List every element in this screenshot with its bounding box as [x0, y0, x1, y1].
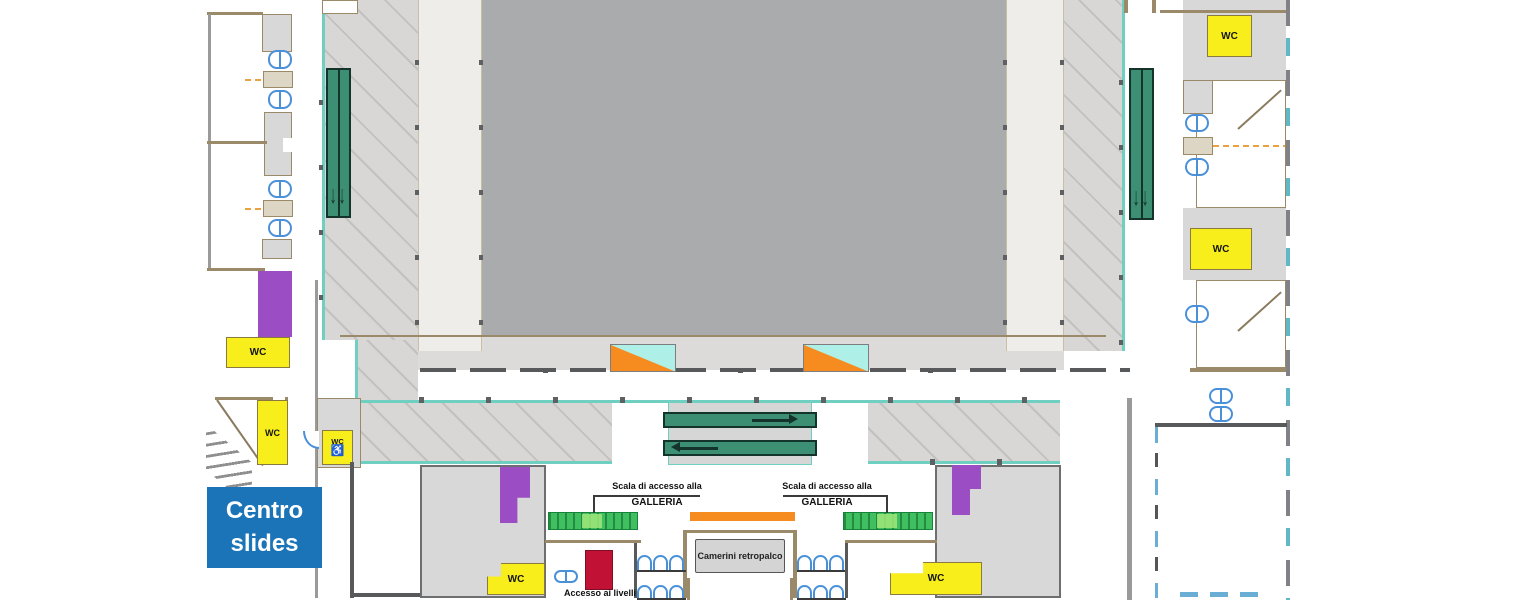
wheelchair-icon: ♿: [331, 446, 345, 457]
arrow-shaft: [680, 447, 718, 450]
wall: [1190, 368, 1288, 372]
badge-line1: Centro: [226, 495, 303, 527]
column-grid-dots: [1119, 20, 1123, 350]
escalator-left: ↓↓: [326, 68, 351, 218]
stage-area: [482, 0, 1006, 337]
wall-niche: [1183, 137, 1213, 155]
right-column-strip: [1006, 0, 1064, 351]
gallery-stairs-note-right: Scala di accesso alla: [747, 481, 907, 491]
wc-room: WC: [890, 562, 982, 595]
folding-door-row: [637, 555, 686, 572]
down-arrows-icon: ↓↓: [328, 180, 349, 209]
wall: [1160, 10, 1287, 13]
escalator-right: ↓↓: [1129, 68, 1154, 220]
dashed-wall: [1155, 427, 1158, 598]
column-grid-dots: [357, 397, 1060, 403]
wall: [1152, 0, 1156, 13]
wall: [207, 12, 263, 15]
wc-room: WC: [1190, 228, 1252, 270]
double-door-icon: [265, 50, 295, 69]
right-side-corridor: [1064, 0, 1125, 351]
wall-opening: [283, 138, 293, 152]
folding-door-row: [797, 555, 846, 572]
dashed-wall: [1180, 592, 1265, 597]
double-door-icon: [1209, 388, 1233, 404]
floor-plan: WC WC WC ♿ ↓↓ ↓↓ WC WC: [0, 0, 1520, 600]
wall: [1124, 0, 1128, 13]
wall: [1155, 423, 1287, 427]
right-arrow-icon: [789, 414, 798, 424]
stage-exit-ramp: [803, 344, 869, 372]
wall: [207, 141, 267, 144]
wall: [845, 543, 848, 598]
wall-block: [262, 239, 292, 259]
stair-block-red: [585, 550, 613, 590]
stage-edge-wall: [340, 335, 1106, 337]
dashed-line: [1213, 145, 1285, 147]
gallery-stairs-right: [843, 512, 933, 530]
wall-block: [262, 14, 292, 52]
teal-edge: [357, 461, 612, 464]
column-grid-dots: [415, 0, 419, 348]
wall: [545, 540, 641, 543]
wall: [683, 530, 797, 533]
perimeter-wall: [1286, 0, 1290, 600]
stage-walkway: [418, 337, 1064, 370]
dashed-line: [245, 79, 263, 81]
teal-edge: [355, 340, 358, 402]
column-grid-dots: [479, 0, 483, 348]
level-access-label: Accesso ai livelli: [550, 588, 650, 600]
backstage-rooms-label: Camerini retropalco: [695, 539, 785, 573]
grid-dot: [738, 368, 743, 373]
double-door-icon: [1184, 158, 1210, 176]
top-corner-room: [322, 0, 358, 14]
column-grid-dots: [1003, 0, 1007, 348]
wall: [790, 578, 793, 600]
wall: [208, 144, 211, 270]
gallery-corridor-left: [357, 402, 612, 463]
left-arrow-icon: [671, 442, 680, 452]
gallery-stairs-note-right2: GALLERIA: [747, 497, 907, 508]
folding-door-row: [637, 585, 686, 600]
grid-dot: [928, 368, 933, 373]
gallery-stairs-note-left: Scala di accesso alla: [577, 481, 737, 491]
wc-room: WC: [226, 337, 290, 368]
side-room: [1196, 280, 1286, 368]
double-door-icon: [1209, 406, 1233, 422]
wall-block: [1183, 80, 1213, 114]
arrow-shaft: [752, 419, 790, 422]
dashed-line: [245, 208, 263, 210]
walkway-dashed-wall: [420, 368, 1130, 372]
column-grid-dots: [319, 40, 323, 340]
stage-exit-ramp: [610, 344, 676, 372]
wall-niche: [263, 200, 293, 217]
orange-ramp: [690, 512, 795, 521]
left-side-corridor-lower: [357, 340, 418, 402]
centro-slides-badge: Centro slides: [207, 487, 322, 568]
grid-dot: [543, 368, 548, 373]
left-column-strip: [418, 0, 482, 351]
wc-accessible-room: WC ♿: [322, 430, 353, 465]
wc-room: WC: [257, 400, 288, 465]
wall: [1127, 398, 1132, 600]
door-swing-icon: [303, 431, 319, 449]
wc-room: WC: [1207, 15, 1252, 57]
double-door-icon: [265, 180, 295, 198]
wall: [845, 540, 937, 543]
double-door-icon: [556, 570, 576, 583]
wall: [687, 578, 690, 600]
column-grid-dots: [1060, 0, 1064, 348]
wall-niche: [263, 71, 293, 88]
gallery-corridor-right: [868, 402, 1060, 463]
double-door-icon: [1184, 114, 1210, 132]
double-door-icon: [1184, 305, 1210, 323]
wall: [208, 14, 211, 142]
folding-door-row: [797, 585, 846, 600]
wall: [350, 462, 354, 598]
gallery-stairs-left: [548, 512, 638, 530]
gallery-stairs-note-left2: GALLERIA: [577, 497, 737, 508]
badge-line2: slides: [230, 528, 298, 560]
double-door-icon: [265, 219, 295, 237]
wall: [207, 268, 265, 271]
stair-block-purple: [258, 271, 292, 337]
double-door-icon: [265, 90, 295, 109]
down-arrows-icon: ↓↓: [1131, 182, 1152, 211]
